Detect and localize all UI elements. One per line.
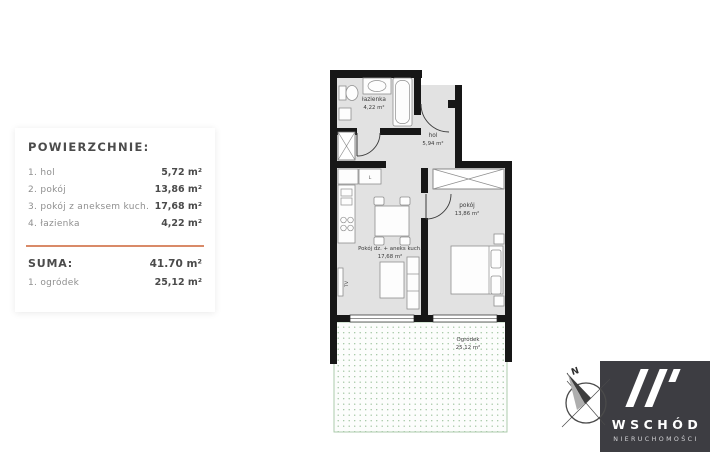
area-row-lazienka: 4. łazienka 4,22 m²	[28, 218, 202, 235]
window-symbols	[350, 315, 497, 322]
suma-label: SUMA:	[28, 257, 73, 270]
garden-value: 25,12 m²	[155, 277, 202, 288]
area-value: 17,68 m²	[155, 201, 202, 212]
page: POWIERZCHNIE: 1. hol 5,72 m² 2. pokój 13…	[0, 0, 710, 463]
tv-label: TV	[344, 280, 350, 288]
label-hol-area: 5,94 m²	[422, 140, 443, 147]
company-logo: WSCHÓD NIERUCHOMOŚCI	[600, 361, 710, 452]
area-value: 5,72 m²	[161, 167, 202, 178]
door-symbols	[357, 104, 451, 219]
area-label: 3. pokój z aneksem kuch.	[28, 202, 149, 212]
fridge-label: L	[369, 175, 372, 181]
suma-value: 41.70 m²	[150, 258, 202, 270]
room-labels: łazienka 4,22 m² hol 5,94 m² pokój 13,86…	[358, 97, 480, 351]
garden-label: 1. ogródek	[28, 278, 79, 288]
area-label: 4. łazienka	[28, 219, 80, 229]
area-label: 2. pokój	[28, 185, 66, 195]
toilet-symbol	[339, 86, 358, 121]
label-pokoj-area: 13,86 m²	[455, 210, 480, 217]
label-ogrodek: Ogródek	[457, 336, 481, 343]
label-lazienka-area: 4,22 m²	[363, 104, 384, 111]
compass-north-label: N	[570, 366, 580, 378]
area-value: 4,22 m²	[161, 218, 202, 229]
coffee-table-symbol	[380, 262, 404, 298]
wardrobe-symbol-bedroom	[433, 169, 504, 189]
area-value: 13,86 m²	[155, 184, 202, 195]
dining-table-symbol	[374, 197, 410, 245]
kitchen-symbols: L	[338, 169, 381, 243]
label-pokoj: pokój	[459, 202, 475, 209]
accent-divider	[26, 245, 204, 247]
area-label: 1. hol	[28, 168, 55, 178]
label-salon-area: 17,68 m²	[378, 253, 403, 260]
logo-name: WSCHÓD	[600, 417, 710, 432]
label-salon: Pokój dz. + aneks kuch.	[358, 245, 422, 252]
garden-row: 1. ogródek 25,12 m²	[28, 277, 202, 294]
area-row-hol: 1. hol 5,72 m²	[28, 167, 202, 184]
label-hol: hol	[429, 133, 438, 139]
bathtub-symbol	[393, 78, 412, 126]
area-row-pokoj-aneks: 3. pokój z aneksem kuch. 17,68 m²	[28, 201, 202, 218]
label-lazienka: łazienka	[362, 97, 386, 103]
bed-symbol	[451, 234, 504, 306]
logo-w-icon	[600, 369, 710, 413]
area-row-pokoj: 2. pokój 13,86 m²	[28, 184, 202, 201]
sink-symbol	[363, 78, 391, 94]
logo-subtitle: NIERUCHOMOŚCI	[600, 436, 710, 443]
sofa-symbol	[407, 257, 419, 309]
wardrobe-symbol-hall	[338, 132, 355, 160]
areas-panel: POWIERZCHNIE: 1. hol 5,72 m² 2. pokój 13…	[15, 128, 215, 312]
garden-area	[334, 322, 507, 432]
apartment-floor	[334, 74, 508, 318]
tv-symbol: TV	[338, 268, 350, 296]
walls	[330, 70, 512, 364]
panel-title: POWIERZCHNIE:	[28, 140, 202, 154]
suma-row: SUMA: 41.70 m²	[28, 257, 202, 277]
label-ogrodek-area: 25,12 m²	[456, 344, 481, 351]
